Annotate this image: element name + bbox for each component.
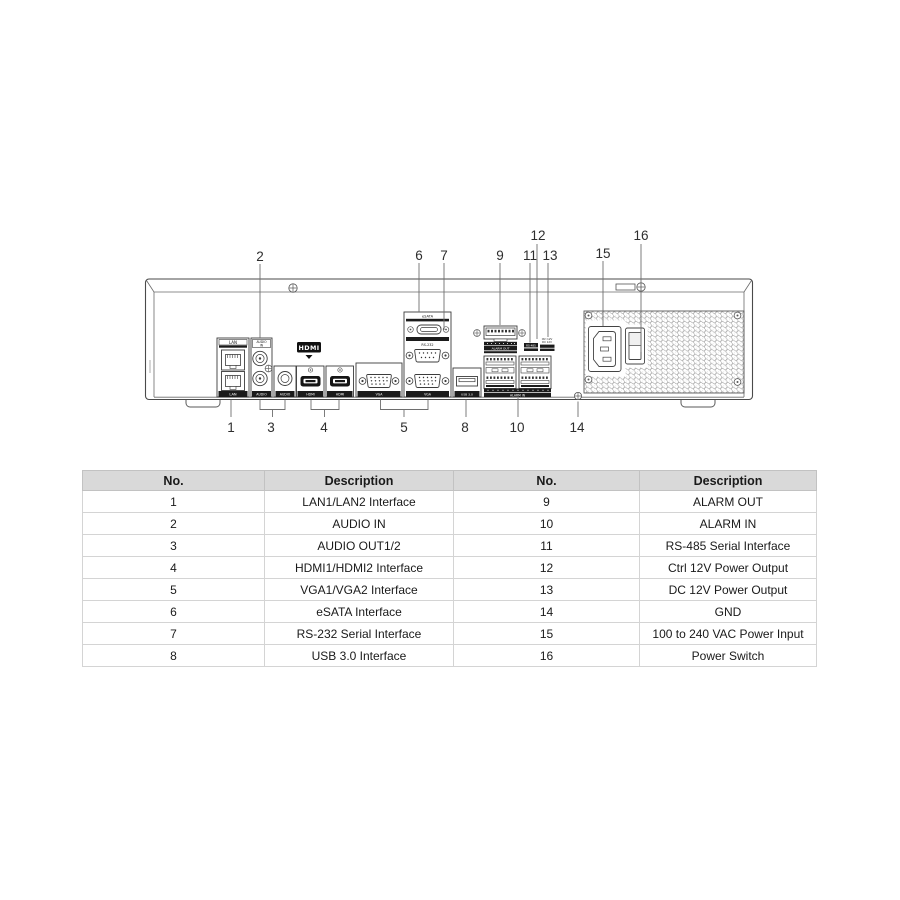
cell-description: USB 3.0 Interface bbox=[265, 645, 454, 667]
cell-no: 8 bbox=[83, 645, 265, 667]
interface-spec-table: No. Description No. Description 1 LAN1/L… bbox=[82, 470, 817, 667]
callout-8-number: 8 bbox=[461, 420, 469, 435]
top-screw-left bbox=[289, 284, 297, 292]
esata-label: eSATA bbox=[422, 315, 434, 319]
callout-9-number: 9 bbox=[496, 248, 504, 263]
lan-top-label: LAN bbox=[229, 340, 237, 345]
cell-no: 12 bbox=[454, 557, 640, 579]
vga1-label: VGA bbox=[376, 393, 384, 397]
rear-panel-diagram: LAN LAN AUDIO IN bbox=[0, 0, 900, 460]
alarm-in-label: ALARM IN bbox=[510, 393, 526, 397]
cell-description: AUDIO IN bbox=[265, 513, 454, 535]
table-row: 8 USB 3.0 Interface 16 Power Switch bbox=[83, 645, 817, 667]
cell-description: DC 12V Power Output bbox=[640, 579, 817, 601]
rj45-port-2 bbox=[222, 372, 245, 391]
alarm-out-screw-right bbox=[519, 330, 526, 337]
callout-7-number: 7 bbox=[440, 248, 448, 263]
cell-no: 4 bbox=[83, 557, 265, 579]
callout-12-number: 12 bbox=[530, 228, 545, 243]
audio-bottom-label: AUDIO bbox=[256, 393, 267, 397]
vent-screw-tl bbox=[585, 312, 592, 319]
callout-10-number: 10 bbox=[509, 420, 524, 435]
cell-description: GND bbox=[640, 601, 817, 623]
cell-description: HDMI1/HDMI2 Interface bbox=[265, 557, 454, 579]
lan-ports: LAN LAN bbox=[217, 338, 249, 397]
cell-no: 7 bbox=[83, 623, 265, 645]
callout-13-number: 13 bbox=[542, 248, 557, 263]
callout-3-number: 3 bbox=[267, 420, 275, 435]
cell-description: ALARM OUT bbox=[640, 491, 817, 513]
power-switch bbox=[626, 328, 645, 364]
cell-no: 15 bbox=[454, 623, 640, 645]
audio-screw bbox=[265, 365, 272, 372]
audio-out-jack: AUDIO bbox=[274, 366, 296, 397]
alarm-out-screw-left bbox=[474, 330, 481, 337]
col-header-no-left: No. bbox=[83, 471, 265, 491]
table-row: 3 AUDIO OUT1/2 11 RS-485 Serial Interfac… bbox=[83, 535, 817, 557]
cell-description: VGA1/VGA2 Interface bbox=[265, 579, 454, 601]
audio-in-jacks: AUDIO IN AUDIO bbox=[251, 338, 272, 397]
cell-description: AUDIO OUT1/2 bbox=[265, 535, 454, 557]
cell-description: 100 to 240 VAC Power Input bbox=[640, 623, 817, 645]
rs485-label: RS-485 bbox=[524, 343, 538, 351]
audio-out-bottom-label: AUDIO bbox=[280, 393, 291, 397]
col-header-desc-right: Description bbox=[640, 471, 817, 491]
vent-screw-tr bbox=[734, 312, 741, 319]
callout-6-number: 6 bbox=[415, 248, 423, 263]
callout-14-number: 14 bbox=[569, 420, 585, 435]
callout-11-number: 11 bbox=[523, 248, 537, 263]
cell-no: 13 bbox=[454, 579, 640, 601]
alarm-out-label: ALARM OUT bbox=[492, 346, 510, 350]
cell-no: 9 bbox=[454, 491, 640, 513]
table-row: 7 RS-232 Serial Interface 15 100 to 240 … bbox=[83, 623, 817, 645]
table-row: 6 eSATA Interface 14 GND bbox=[83, 601, 817, 623]
table-row: 5 VGA1/VGA2 Interface 13 DC 12V Power Ou… bbox=[83, 579, 817, 601]
cell-no: 14 bbox=[454, 601, 640, 623]
cell-description: RS-232 Serial Interface bbox=[265, 623, 454, 645]
top-handle-slot bbox=[616, 284, 635, 290]
rs232-label: RS-232 bbox=[421, 343, 433, 347]
vga1-port: VGA bbox=[356, 363, 402, 397]
alarm-in-block-1 bbox=[484, 356, 516, 389]
vent-screw-br bbox=[734, 379, 741, 386]
hdmi-logo-text: HDMI bbox=[299, 344, 320, 352]
gnd-screw bbox=[574, 392, 581, 399]
callout-1-number: 1 bbox=[227, 420, 235, 435]
cell-no: 3 bbox=[83, 535, 265, 557]
cell-description: LAN1/LAN2 Interface bbox=[265, 491, 454, 513]
hdmi1-port: HDMI bbox=[297, 366, 325, 397]
cell-no: 1 bbox=[83, 491, 265, 513]
vent-screw-bl bbox=[585, 376, 592, 383]
cell-description: RS-485 Serial Interface bbox=[640, 535, 817, 557]
callout-16-number: 16 bbox=[633, 228, 648, 243]
cell-no: 10 bbox=[454, 513, 640, 535]
hdmi2-port: HDMI bbox=[326, 366, 354, 397]
cell-no: 5 bbox=[83, 579, 265, 601]
product-diagram-page: LAN LAN AUDIO IN bbox=[0, 0, 900, 900]
cell-description: ALARM IN bbox=[640, 513, 817, 535]
power-inlet bbox=[589, 327, 622, 372]
callout-4-number: 4 bbox=[320, 420, 328, 435]
table-row: 1 LAN1/LAN2 Interface 9 ALARM OUT bbox=[83, 491, 817, 513]
alarm-in-block-2 bbox=[519, 356, 551, 389]
table-row: 4 HDMI1/HDMI2 Interface 12 Ctrl 12V Powe… bbox=[83, 557, 817, 579]
usb3-label: USB 3.0 bbox=[461, 393, 473, 397]
cell-no: 11 bbox=[454, 535, 640, 557]
table-header-row: No. Description No. Description bbox=[83, 471, 817, 491]
col-header-no-right: No. bbox=[454, 471, 640, 491]
cell-no: 16 bbox=[454, 645, 640, 667]
rs485-text: RS-485 bbox=[526, 343, 536, 347]
col-header-desc-left: Description bbox=[265, 471, 454, 491]
vga2-label: VGA bbox=[424, 393, 432, 397]
lan-bottom-label: LAN bbox=[229, 393, 237, 397]
table-row: 2 AUDIO IN 10 ALARM IN bbox=[83, 513, 817, 535]
cell-no: 6 bbox=[83, 601, 265, 623]
rj45-port-1 bbox=[222, 350, 245, 370]
callout-2-number: 2 bbox=[256, 249, 264, 264]
usb3-port: USB 3.0 bbox=[453, 368, 481, 397]
callout-5-number: 5 bbox=[400, 420, 408, 435]
cell-description: Power Switch bbox=[640, 645, 817, 667]
hdmi2-label: HDMI bbox=[336, 393, 345, 397]
cell-description: Ctrl 12V Power Output bbox=[640, 557, 817, 579]
dc-12v-text: DC 12V bbox=[542, 340, 552, 344]
cell-description: eSATA Interface bbox=[265, 601, 454, 623]
hdmi1-label: HDMI bbox=[306, 393, 315, 397]
callout-15-number: 15 bbox=[595, 246, 610, 261]
cell-no: 2 bbox=[83, 513, 265, 535]
